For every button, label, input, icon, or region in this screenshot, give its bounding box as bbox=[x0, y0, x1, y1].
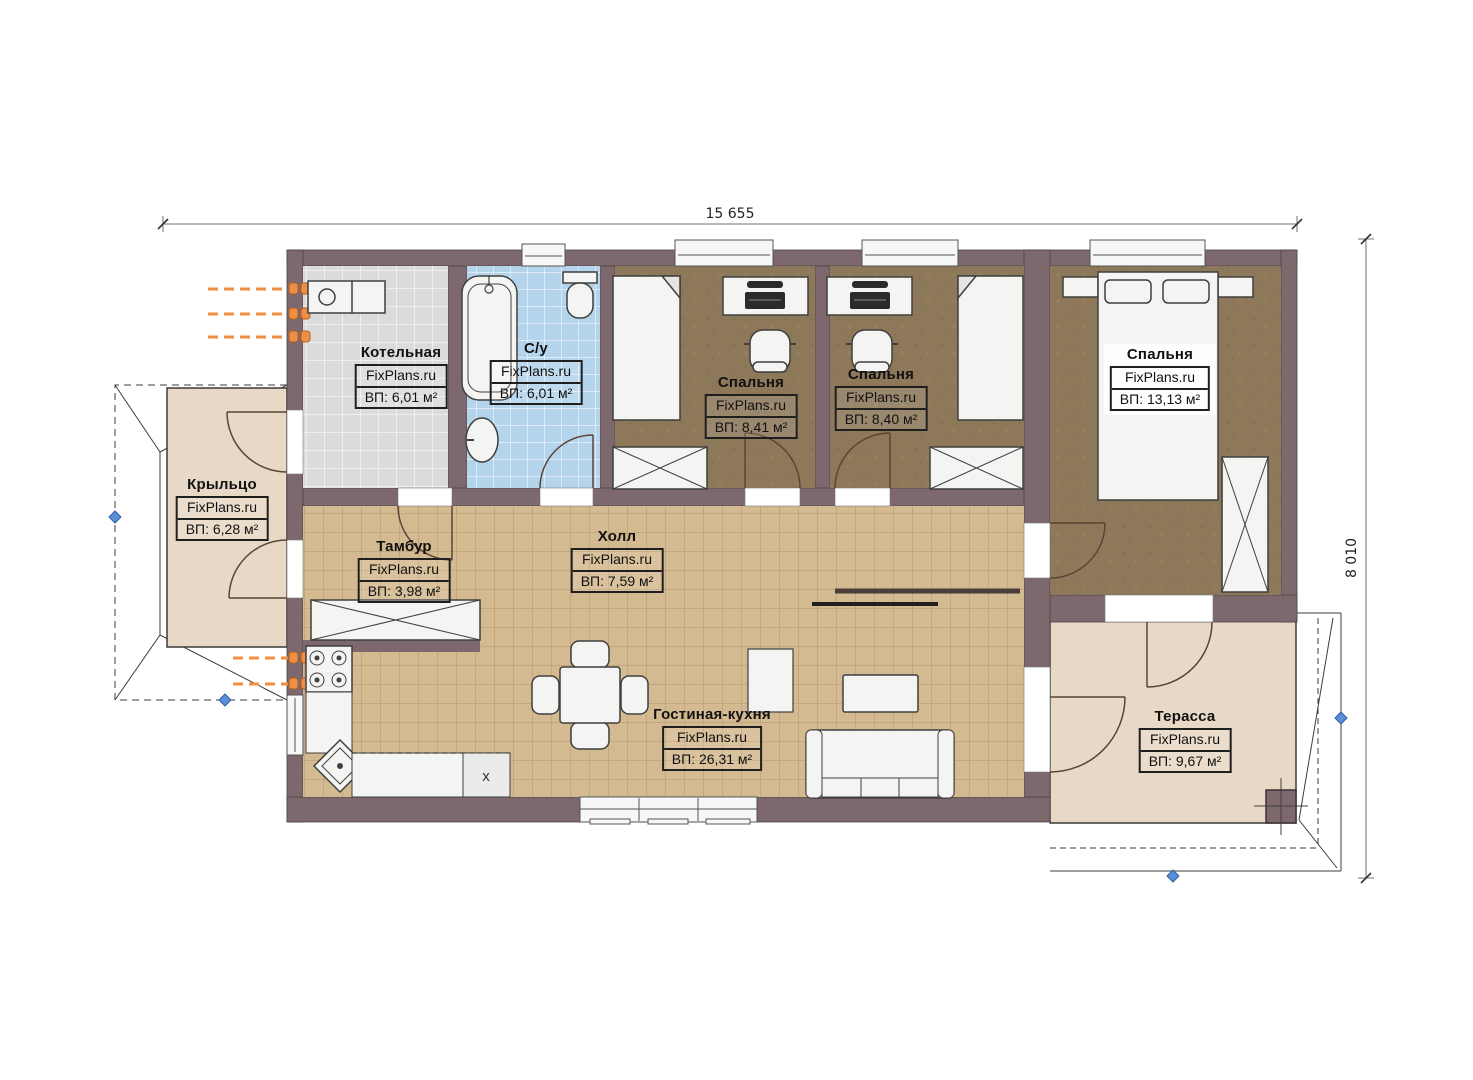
watermark-label: FixPlans.ru bbox=[837, 388, 926, 408]
room-label-kotelnaya: Котельная FixPlans.ru ВП: 6,01 м² bbox=[355, 344, 448, 409]
room-title: Спальня bbox=[1110, 346, 1210, 363]
bedroom2-bed bbox=[958, 276, 1023, 420]
room-title: Крыльцо bbox=[176, 476, 269, 493]
coffee-table bbox=[843, 675, 918, 712]
bedroom1-bed bbox=[613, 276, 680, 420]
boiler-unit bbox=[308, 281, 385, 313]
room-label-bedroom3: Спальня FixPlans.ru ВП: 13,13 м² bbox=[1104, 344, 1216, 415]
room-title: С/у bbox=[490, 340, 583, 357]
node-terrace-bottom bbox=[1167, 870, 1179, 882]
watermark-label: FixPlans.ru bbox=[1141, 730, 1230, 750]
room-label-tambur: Тамбур FixPlans.ru ВП: 3,98 м² bbox=[358, 538, 451, 603]
watermark-label: FixPlans.ru bbox=[492, 362, 581, 382]
watermark-label: FixPlans.ru bbox=[178, 498, 267, 518]
bedroom1-desk bbox=[723, 277, 808, 315]
window-bedroom2 bbox=[862, 240, 958, 266]
room-title: Спальня bbox=[705, 374, 798, 391]
room-title: Спальня bbox=[835, 366, 928, 383]
window-bathroom bbox=[522, 244, 565, 266]
toilet bbox=[563, 272, 597, 318]
node-terrace-right bbox=[1335, 712, 1347, 724]
room-label-hall: Холл FixPlans.ru ВП: 7,59 м² bbox=[571, 528, 664, 593]
dimension-right: 8 010 bbox=[1344, 234, 1374, 883]
watermark-label: FixPlans.ru bbox=[1112, 368, 1208, 388]
watermark-label: FixPlans.ru bbox=[357, 366, 446, 386]
room-label-terrace: Терасса FixPlans.ru ВП: 9,67 м² bbox=[1139, 708, 1232, 773]
dimension-width-label: 15 655 bbox=[706, 206, 755, 222]
kitchen-counter-left bbox=[306, 692, 352, 753]
room-title: Гостиная-кухня bbox=[653, 706, 771, 723]
room-area: ВП: 8,40 м² bbox=[837, 408, 926, 430]
bedroom1-wardrobe bbox=[613, 447, 707, 489]
bedroom3-wardrobe bbox=[1222, 457, 1268, 592]
bedroom2-wardrobe bbox=[930, 447, 1023, 489]
watermark-label: FixPlans.ru bbox=[573, 550, 662, 570]
room-area: ВП: 6,01 м² bbox=[357, 386, 446, 408]
room-area: ВП: 3,98 м² bbox=[360, 580, 449, 602]
room-area: ВП: 9,67 м² bbox=[1141, 750, 1230, 772]
kitchen-stove bbox=[306, 646, 352, 692]
room-label-bedroom2: Спальня FixPlans.ru ВП: 8,40 м² bbox=[835, 366, 928, 431]
watermark-label: FixPlans.ru bbox=[664, 728, 760, 748]
room-title: Котельная bbox=[355, 344, 448, 361]
bathroom-sink bbox=[466, 418, 498, 462]
bedroom1-chair bbox=[744, 330, 796, 372]
room-area: ВП: 6,01 м² bbox=[492, 382, 581, 404]
watermark-label: FixPlans.ru bbox=[707, 396, 796, 416]
room-area: ВП: 26,31 м² bbox=[664, 748, 760, 770]
dimension-top: 15 655 bbox=[158, 206, 1302, 232]
kitchen-counter-bottom: x bbox=[352, 753, 510, 797]
room-area: ВП: 8,41 м² bbox=[707, 416, 796, 438]
watermark-label: FixPlans.ru bbox=[360, 560, 449, 580]
node-porch-left bbox=[109, 511, 121, 523]
room-label-living: Гостиная-кухня FixPlans.ru ВП: 26,31 м² bbox=[653, 706, 771, 771]
kitchen-unit-mark: x bbox=[482, 768, 490, 785]
room-title: Холл bbox=[571, 528, 664, 545]
dimension-height-label: 8 010 bbox=[1344, 538, 1360, 578]
room-label-bedroom1: Спальня FixPlans.ru ВП: 8,41 м² bbox=[705, 374, 798, 439]
node-porch-bottom bbox=[219, 694, 231, 706]
room-label-su: С/у FixPlans.ru ВП: 6,01 м² bbox=[490, 340, 583, 405]
room-title: Тамбур bbox=[358, 538, 451, 555]
window-bedroom1 bbox=[675, 240, 773, 266]
bedroom2-desk bbox=[827, 277, 912, 315]
room-area: ВП: 7,59 м² bbox=[573, 570, 662, 592]
floor-plan-page: x bbox=[0, 0, 1473, 1080]
sofa bbox=[806, 730, 954, 798]
tambour-wardrobe bbox=[311, 600, 480, 640]
room-area: ВП: 6,28 м² bbox=[178, 518, 267, 540]
window-bedroom3 bbox=[1090, 240, 1205, 266]
bookshelf bbox=[748, 649, 793, 712]
room-title: Терасса bbox=[1139, 708, 1232, 725]
room-label-porch: Крыльцо FixPlans.ru ВП: 6,28 м² bbox=[176, 476, 269, 541]
room-area: ВП: 13,13 м² bbox=[1112, 388, 1208, 410]
